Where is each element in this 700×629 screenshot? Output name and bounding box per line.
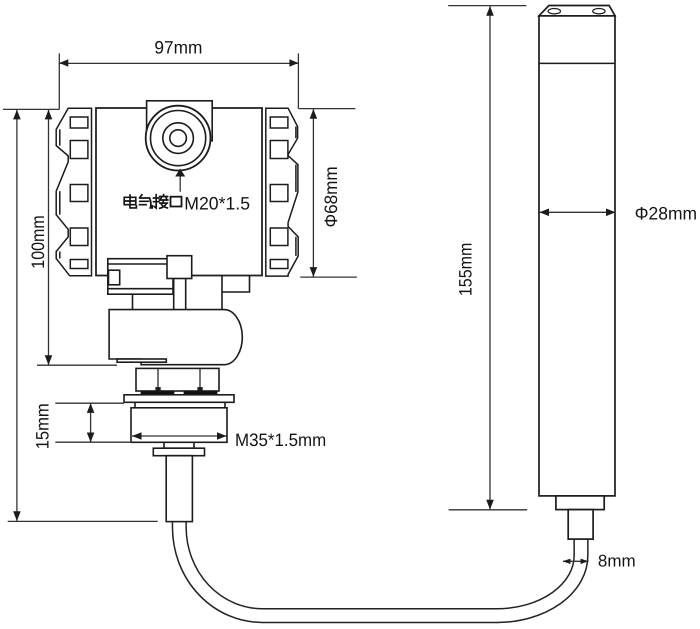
svg-text:Φ28mm: Φ28mm [635,204,697,224]
svg-text:100mm: 100mm [28,215,48,268]
svg-text:M35*1.5mm: M35*1.5mm [235,430,326,450]
svg-text:8mm: 8mm [598,552,636,571]
svg-text:155mm: 155mm [455,243,475,296]
svg-text:15mm: 15mm [33,403,53,449]
svg-text:97mm: 97mm [154,37,202,57]
svg-text:M20*1.5: M20*1.5 [184,193,250,213]
svg-text:Φ68mm: Φ68mm [321,166,341,227]
